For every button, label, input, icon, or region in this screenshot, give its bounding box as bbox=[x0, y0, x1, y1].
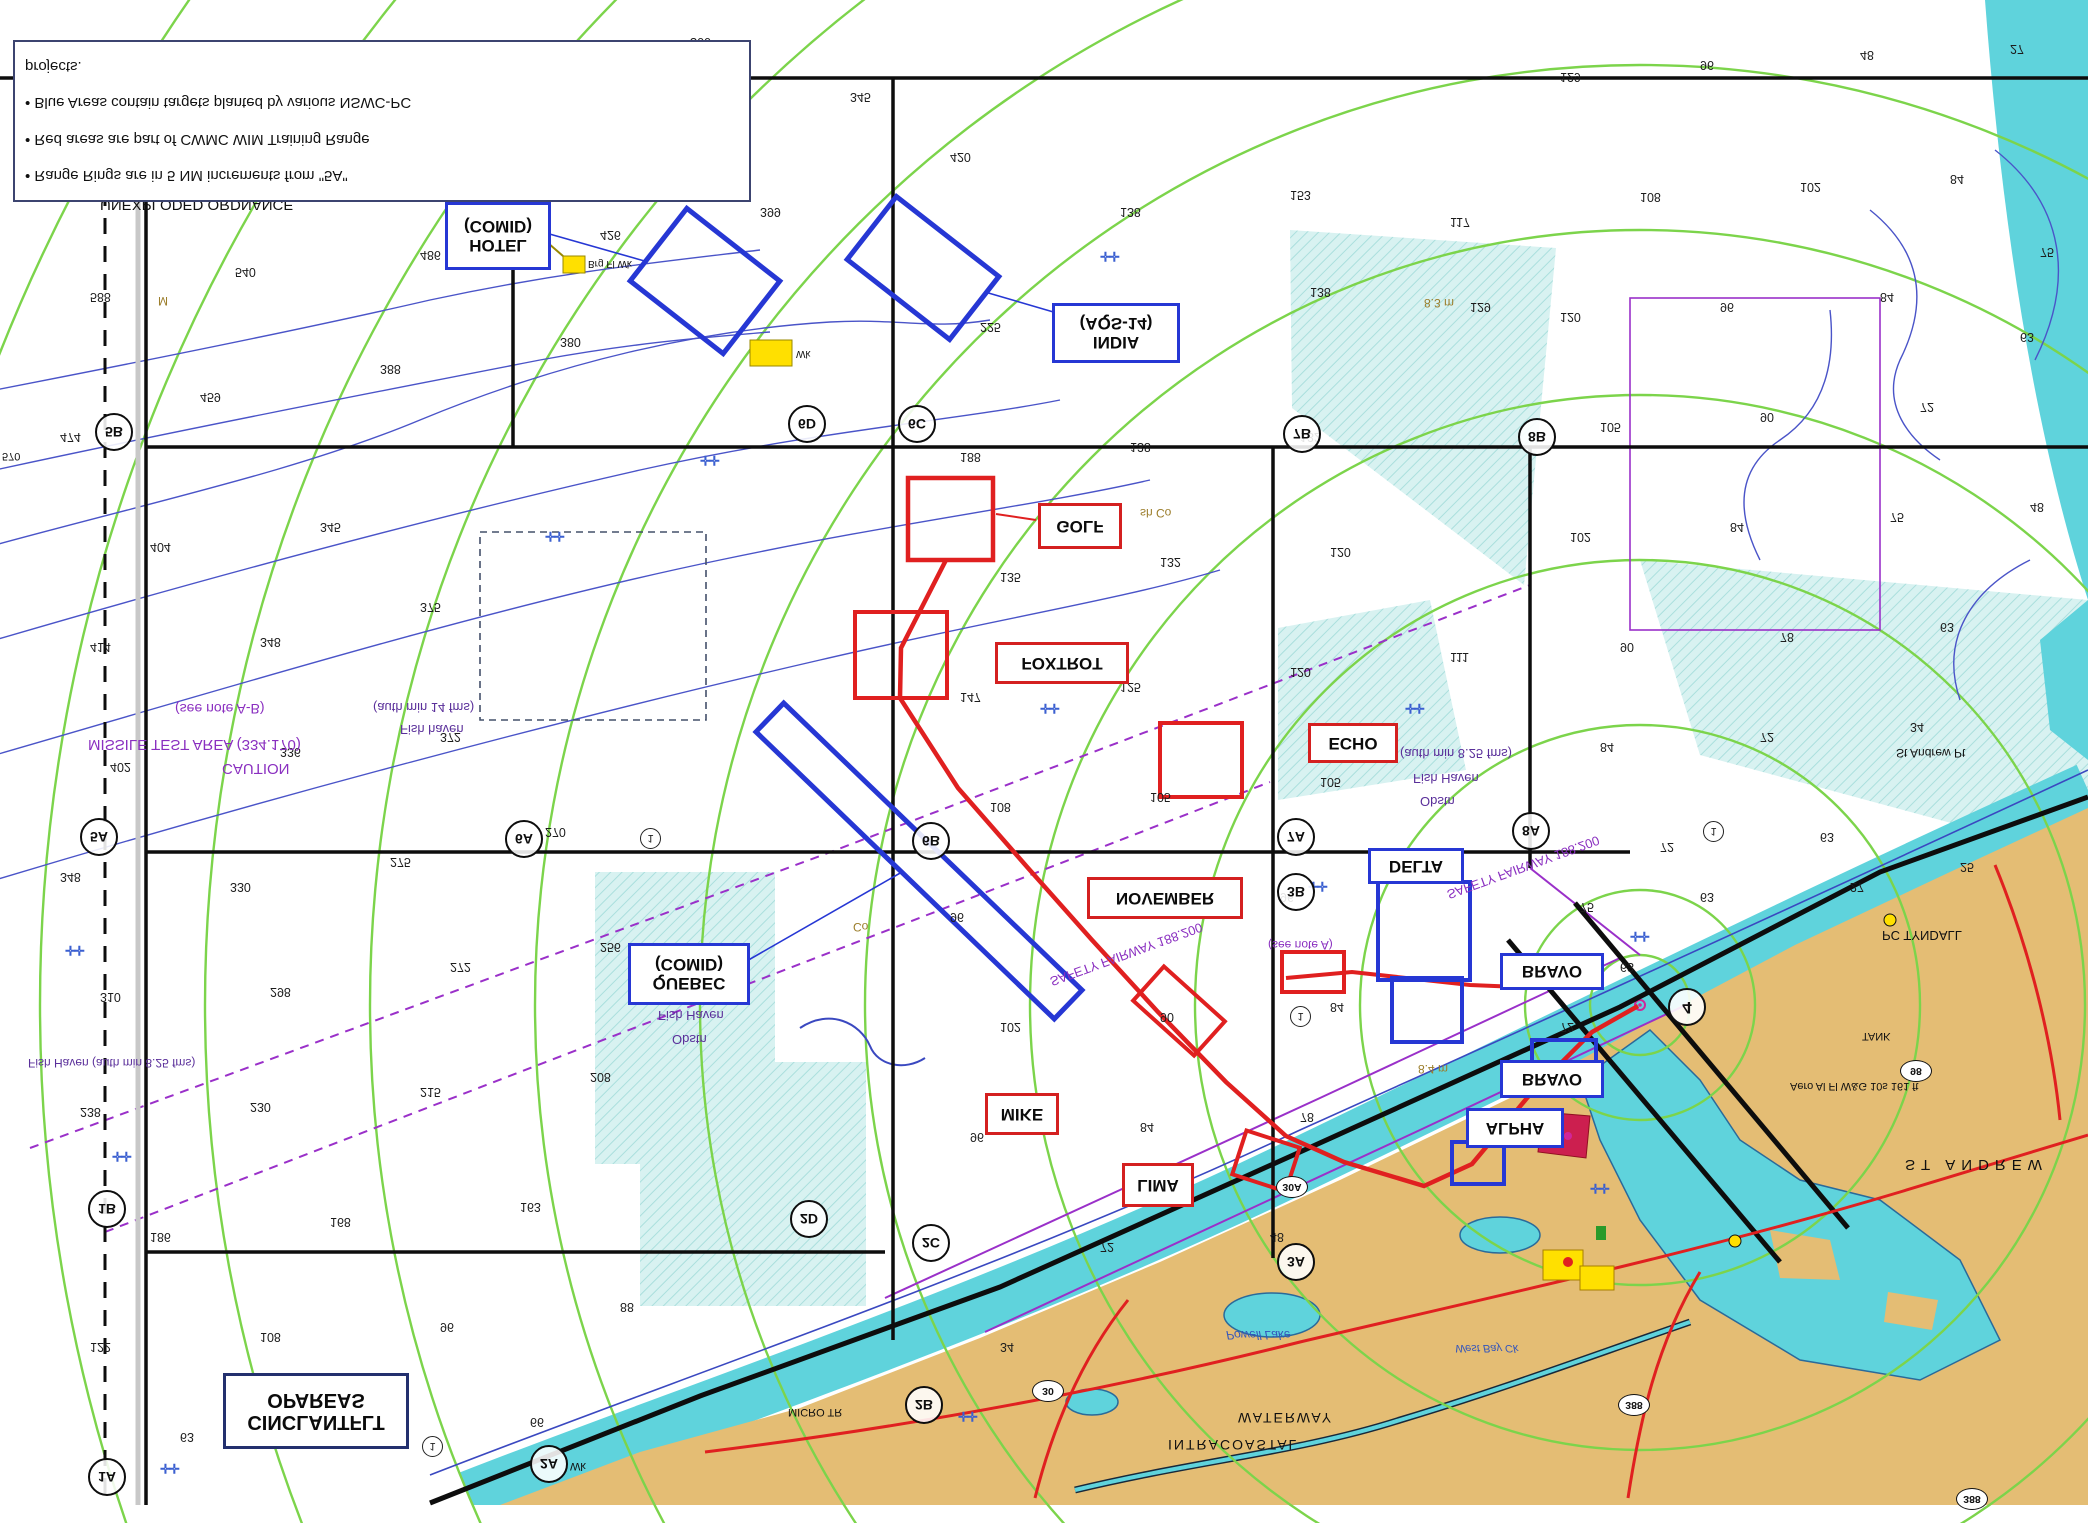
depth-sounding: 230 bbox=[250, 1100, 271, 1114]
depth-sounding: 108 bbox=[1640, 190, 1661, 204]
depth-sounding: 345 bbox=[850, 90, 871, 104]
depth-sounding: 270 bbox=[545, 825, 566, 839]
depth-sounding: 153 bbox=[1290, 188, 1311, 202]
depth-sounding: 138 bbox=[1120, 205, 1141, 219]
depth-sounding: 132 bbox=[1160, 555, 1181, 569]
chart-note: Fish Haven bbox=[658, 1008, 724, 1023]
ring-center-dot bbox=[1638, 1003, 1642, 1007]
depth-sounding: 186 bbox=[150, 1230, 171, 1244]
grid-cell-label-2D: 2D bbox=[790, 1200, 828, 1238]
area-label-quebec: QUEBEC (COMID) bbox=[628, 943, 750, 1005]
depth-sounding: 135 bbox=[1000, 570, 1021, 584]
chart-note: Fish Haven bbox=[1413, 771, 1479, 786]
area-label-text: MIKE bbox=[988, 1104, 1056, 1123]
depth-sounding: 96 bbox=[1700, 58, 1714, 72]
depth-sounding: 72 bbox=[1920, 400, 1934, 414]
grid-cell-label-6A: 6A bbox=[505, 820, 543, 858]
area-label-text: NOVEMBER bbox=[1090, 888, 1240, 907]
depth-sounding: 138 bbox=[1130, 440, 1151, 454]
depth-sounding: 63 bbox=[1700, 890, 1714, 904]
depth-sounding: 63 bbox=[1940, 620, 1954, 634]
depth-sounding: 66 bbox=[530, 1415, 544, 1429]
legend-line: projects. bbox=[25, 58, 739, 75]
depth-sounding: 420 bbox=[950, 150, 971, 164]
chart-note: INTRACOASTAL bbox=[1168, 1437, 1298, 1453]
chart-note: M bbox=[158, 294, 168, 308]
obstruction-icon: 1 bbox=[422, 1436, 443, 1457]
depth-sounding: 540 bbox=[235, 265, 256, 279]
depth-sounding: 96 bbox=[950, 910, 964, 924]
depth-sounding: 474 bbox=[60, 430, 81, 444]
chart-margin bbox=[0, 1505, 2088, 1523]
grid-cell-label-8A: 8A bbox=[1512, 812, 1550, 850]
chart-note: (see note A-B) bbox=[175, 701, 265, 717]
road-shield-98: 98 bbox=[1900, 1060, 1932, 1082]
depth-sounding: 84 bbox=[1600, 740, 1614, 754]
legend-line: • Blue Areas contain targets planted by … bbox=[25, 94, 739, 111]
grid-cell-label-5B: 5B bbox=[95, 413, 133, 451]
chart-note: 8.3 m bbox=[1424, 296, 1454, 310]
area-label-lima: LIMA bbox=[1122, 1163, 1194, 1207]
area-label-cinclantflt-opareas: CINCLANTFLT OPAREAS bbox=[223, 1373, 409, 1449]
chart-note: MISSILE TEST AREA (334.170) bbox=[88, 736, 301, 753]
area-label-text: GOLF bbox=[1041, 516, 1119, 535]
chart-note: PC TYNDALL bbox=[1882, 928, 1962, 943]
legend-line: • Range Rings are in 5 NM increments fro… bbox=[25, 167, 739, 184]
legend-note-box: • Range Rings are in 5 NM increments fro… bbox=[13, 40, 751, 202]
road-shield-30A: 30A bbox=[1276, 1176, 1308, 1198]
rock-icon: ✛✛ bbox=[958, 1408, 976, 1424]
grid-cell-label-8B: 8B bbox=[1518, 418, 1556, 456]
depth-sounding: 75 bbox=[1580, 900, 1594, 914]
area-label-text: OPAREAS bbox=[226, 1389, 406, 1411]
depth-sounding: 348 bbox=[260, 635, 281, 649]
rock-icon: ✛✛ bbox=[545, 528, 563, 544]
chart-note: Obstn bbox=[1420, 794, 1455, 809]
depth-sounding: 72 bbox=[1560, 1020, 1574, 1034]
depth-sounding: 399 bbox=[760, 205, 781, 219]
depth-sounding: 188 bbox=[960, 450, 981, 464]
depth-sounding: 388 bbox=[380, 362, 401, 376]
depth-sounding: 215 bbox=[420, 1085, 441, 1099]
area-label-text: INDIA bbox=[1055, 333, 1177, 352]
depth-sounding: 225 bbox=[980, 320, 1001, 334]
chart-note: Powell Lake bbox=[1226, 1328, 1291, 1342]
area-label-text: (COMID) bbox=[631, 955, 747, 974]
rock-icon: ✛✛ bbox=[1100, 248, 1118, 264]
depth-sounding: 238 bbox=[80, 1105, 101, 1119]
mirrored-nautical-chart: • Range Rings are in 5 NM increments fro… bbox=[0, 0, 2088, 1523]
grid-cell-label-3A: 3A bbox=[1277, 1243, 1315, 1281]
depth-sounding: 84 bbox=[1880, 290, 1894, 304]
depth-sounding: 120 bbox=[1560, 310, 1581, 324]
depth-sounding: 208 bbox=[590, 1070, 611, 1084]
magenta-mark bbox=[1564, 1132, 1572, 1140]
obstruction-icon: 1 bbox=[640, 828, 661, 849]
depth-sounding: 345 bbox=[320, 520, 341, 534]
depth-sounding: 122 bbox=[90, 1340, 111, 1354]
rock-icon: ✛✛ bbox=[700, 452, 718, 468]
depth-sounding: 402 bbox=[110, 760, 131, 774]
grid-cell-label-1B: 1B bbox=[88, 1190, 126, 1228]
road-shield-388: 388 bbox=[1956, 1488, 1988, 1510]
depth-sounding: 63 bbox=[1620, 960, 1634, 974]
depth-sounding: 414 bbox=[90, 640, 111, 654]
area-label-text: CINCLANTFLT bbox=[226, 1411, 406, 1433]
area-label-text: (COMID) bbox=[448, 217, 548, 236]
rock-icon: ✛✛ bbox=[1630, 928, 1648, 944]
area-label-mike: MIKE bbox=[985, 1093, 1059, 1135]
grid-cell-label-7A: 7A bbox=[1277, 818, 1315, 856]
area-label-text: (AQS-14) bbox=[1055, 314, 1177, 333]
depth-sounding: 163 bbox=[520, 1200, 541, 1214]
depth-sounding: 105 bbox=[1600, 420, 1621, 434]
geometry-group bbox=[0, 0, 2088, 1523]
depth-sounding: 78 bbox=[1780, 630, 1794, 644]
depth-sounding: 84 bbox=[1730, 520, 1744, 534]
chart-note: Co bbox=[853, 920, 868, 934]
chart-note: (see note A) bbox=[1268, 938, 1333, 952]
area-label-echo: ECHO bbox=[1308, 723, 1398, 763]
depth-sounding: 486 bbox=[420, 248, 441, 262]
depth-sounding: 129 bbox=[1560, 70, 1581, 84]
depth-sounding: 102 bbox=[1570, 530, 1591, 544]
area-label-bravo-north: BRAVO bbox=[1500, 953, 1604, 990]
depth-sounding: 147 bbox=[960, 690, 981, 704]
depth-sounding: 108 bbox=[990, 800, 1011, 814]
area-label-text: BRAVO bbox=[1503, 1069, 1601, 1088]
depth-sounding: 27 bbox=[2010, 42, 2024, 56]
chart-note: Wk bbox=[570, 1460, 586, 1472]
depth-sounding: 96 bbox=[1720, 300, 1734, 314]
obstruction-icon: 1 bbox=[1290, 1006, 1311, 1027]
depth-sounding: 404 bbox=[150, 540, 171, 554]
depth-sounding: 426 bbox=[600, 228, 621, 242]
hatched-area bbox=[640, 1062, 866, 1306]
basemap-graphics bbox=[0, 0, 2088, 1523]
grid-cell-label-7B: 7B bbox=[1283, 415, 1321, 453]
area-label-text: HOTEL bbox=[448, 236, 548, 255]
depth-sounding: 330 bbox=[230, 880, 251, 894]
chart-note: Obstn bbox=[672, 1032, 707, 1047]
depth-sounding: 72 bbox=[1660, 840, 1674, 854]
depth-sounding: 120 bbox=[1290, 665, 1311, 679]
depth-sounding: 256 bbox=[600, 940, 621, 954]
rock-icon: ✛✛ bbox=[1405, 700, 1423, 716]
depth-sounding: 25 bbox=[1960, 860, 1974, 874]
grid-cell-label-3B: 3B bbox=[1277, 873, 1315, 911]
depth-sounding: 168 bbox=[330, 1215, 351, 1229]
depth-sounding: 78 bbox=[1300, 1110, 1314, 1124]
chart-note: 570 bbox=[2, 450, 20, 462]
depth-sounding: 90 bbox=[1760, 410, 1774, 424]
depth-sounding: 275 bbox=[390, 855, 411, 869]
grid-cell-label-6D: 6D bbox=[788, 405, 826, 443]
chart-note: MICRO TR bbox=[788, 1406, 842, 1418]
grid-cell-label-2C: 2C bbox=[912, 1224, 950, 1262]
rock-icon: ✛✛ bbox=[160, 1460, 178, 1476]
area-label-text: QUEBEC bbox=[631, 974, 747, 993]
chart-note: Wk bbox=[796, 348, 810, 359]
depth-sounding: 84 bbox=[1330, 1000, 1344, 1014]
depth-sounding: 34 bbox=[1000, 1340, 1014, 1354]
area-label-text: LIMA bbox=[1125, 1175, 1191, 1194]
chart-note: St Andrew Pt bbox=[1896, 746, 1965, 760]
area-label-golf: GOLF bbox=[1038, 503, 1122, 549]
depth-sounding: 108 bbox=[260, 1330, 281, 1344]
area-label-foxtrot: FOXTROT bbox=[995, 642, 1129, 684]
area-label-text: DELTA bbox=[1371, 856, 1461, 875]
legend-line: • Red areas are part of CWMC WIM Trainin… bbox=[25, 131, 739, 148]
rock-icon: ✛✛ bbox=[112, 1148, 130, 1164]
chart-note: Aero Al Fl W&G 10s 161 ft bbox=[1790, 1080, 1918, 1092]
chart-note: Fish haven bbox=[400, 722, 464, 737]
area-label-alpha: ALPHA bbox=[1466, 1108, 1564, 1148]
chart-note: West Bay Ck bbox=[1455, 1342, 1518, 1354]
area-label-hotel: HOTEL (COMID) bbox=[445, 202, 551, 270]
chart-note: CAUTION bbox=[222, 760, 290, 777]
road-shield-388: 388 bbox=[1618, 1394, 1650, 1416]
depth-sounding: 272 bbox=[450, 960, 471, 974]
grid-cell-label-2B: 2B bbox=[905, 1386, 943, 1424]
depth-sounding: 84 bbox=[1140, 1120, 1154, 1134]
depth-sounding: 48 bbox=[1860, 48, 1874, 62]
depth-sounding: 348 bbox=[60, 870, 81, 884]
depth-sounding: 27 bbox=[1850, 880, 1864, 894]
grid-cell-label-1A: 1A bbox=[88, 1458, 126, 1496]
depth-sounding: 75 bbox=[1890, 510, 1904, 524]
depth-sounding: 63 bbox=[1820, 830, 1834, 844]
depth-sounding: 105 bbox=[1150, 790, 1171, 804]
area-label-india: INDIA (AQS-14) bbox=[1052, 303, 1180, 363]
chart-screenshot: • Range Rings are in 5 NM increments fro… bbox=[0, 0, 2088, 1523]
area-label-text: ALPHA bbox=[1469, 1118, 1561, 1137]
depth-sounding: 102 bbox=[1800, 180, 1821, 194]
depth-sounding: 102 bbox=[1000, 1020, 1021, 1034]
depth-sounding: 90 bbox=[1160, 1010, 1174, 1024]
area-label-bravo-south: BRAVO bbox=[1500, 1060, 1604, 1098]
rock-icon: ✛✛ bbox=[1040, 700, 1058, 716]
road-shield-30: 30 bbox=[1032, 1380, 1064, 1402]
depth-sounding: 34 bbox=[1910, 720, 1924, 734]
depth-sounding: 129 bbox=[1470, 300, 1491, 314]
chart-note: Brg Fl Wk bbox=[588, 258, 632, 269]
depth-sounding: 48 bbox=[1270, 1230, 1284, 1244]
area-label-november: NOVEMBER bbox=[1087, 877, 1243, 919]
rock-icon: ✛✛ bbox=[65, 942, 83, 958]
depth-sounding: 48 bbox=[2030, 500, 2044, 514]
depth-sounding: 459 bbox=[200, 390, 221, 404]
depth-sounding: 138 bbox=[1310, 285, 1331, 299]
area-label-text: ECHO bbox=[1311, 733, 1395, 752]
area-label-text: BRAVO bbox=[1503, 962, 1601, 981]
depth-sounding: 96 bbox=[970, 1130, 984, 1144]
depth-sounding: 63 bbox=[2020, 330, 2034, 344]
chart-note: WATERWAY bbox=[1238, 1410, 1333, 1426]
anchorage-circle: 4 bbox=[1668, 988, 1706, 1026]
grid-cell-label-2A: 2A bbox=[530, 1445, 568, 1483]
depth-sounding: 298 bbox=[270, 985, 291, 999]
depth-sounding: 63 bbox=[180, 1430, 194, 1444]
depth-sounding: 96 bbox=[440, 1320, 454, 1334]
depth-sounding: 117 bbox=[1450, 215, 1470, 229]
depth-sounding: 310 bbox=[100, 990, 121, 1004]
chart-note: (auth min 14 fms) bbox=[373, 700, 474, 715]
depth-sounding: 90 bbox=[1620, 640, 1634, 654]
depth-sounding: 72 bbox=[1760, 730, 1774, 744]
depth-sounding: 111 bbox=[1450, 650, 1469, 664]
chart-note: ST ANDREW bbox=[1905, 1156, 2048, 1173]
obstruction-icon: 1 bbox=[1703, 821, 1724, 842]
chart-note: 8.4 m bbox=[1418, 1062, 1448, 1076]
depth-sounding: 380 bbox=[560, 335, 581, 349]
depth-sounding: 75 bbox=[2040, 245, 2054, 259]
rock-icon: ✛✛ bbox=[1590, 1180, 1608, 1196]
grid-cell-label-5A: 5A bbox=[80, 818, 118, 856]
chart-note: TANK bbox=[1862, 1030, 1891, 1042]
depth-sounding: 105 bbox=[1320, 775, 1341, 789]
depth-sounding: 88 bbox=[620, 1300, 634, 1314]
chart-note: sh Co bbox=[1140, 506, 1171, 520]
grid-cell-label-6C: 6C bbox=[898, 405, 936, 443]
chart-note: (auth min 8.25 fms) bbox=[1400, 746, 1512, 761]
depth-sounding: 375 bbox=[420, 600, 441, 614]
area-label-delta: DELTA bbox=[1368, 848, 1464, 884]
depth-sounding: 72 bbox=[1100, 1240, 1114, 1254]
grid-cell-label-6B: 6B bbox=[912, 822, 950, 860]
chart-note: Fish Haven (auth min 8.25 fms) bbox=[28, 1056, 195, 1070]
depth-sounding: 84 bbox=[1950, 172, 1964, 186]
depth-sounding: 120 bbox=[1330, 545, 1351, 559]
depth-sounding: 588 bbox=[90, 290, 111, 304]
area-label-text: FOXTROT bbox=[998, 653, 1126, 672]
